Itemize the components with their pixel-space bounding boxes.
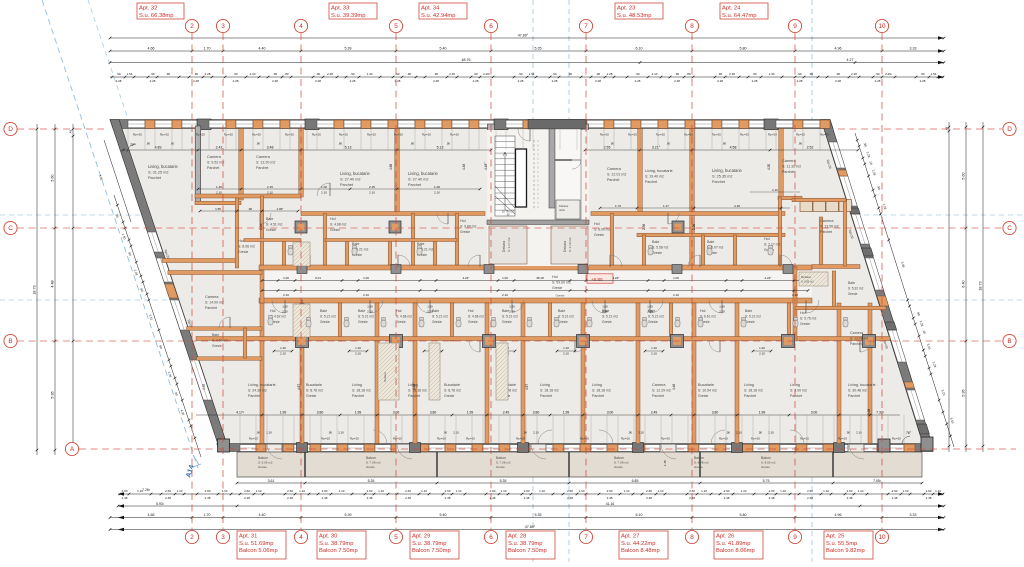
svg-text:Gresie: Gresie [396, 320, 406, 324]
svg-text:.80: .80 [284, 72, 289, 76]
svg-text:Apt. 33: Apt. 33 [331, 5, 349, 11]
svg-text:48.76: 48.76 [462, 58, 471, 62]
svg-text:1.99: 1.99 [759, 411, 766, 415]
svg-text:5.40: 5.40 [440, 47, 447, 51]
svg-text:4.46°: 4.46° [412, 382, 416, 390]
svg-text:2.28: 2.28 [875, 79, 881, 83]
svg-text:S: 14.00 m2: S: 14.00 m2 [205, 300, 224, 304]
svg-text:2.10: 2.10 [736, 431, 742, 435]
svg-text:4.27: 4.27 [847, 58, 854, 62]
svg-text:S: 4.68 m2: S: 4.68 m2 [330, 222, 347, 226]
svg-text:Gresie: Gresie [358, 320, 368, 324]
svg-text:4.18: 4.18 [734, 204, 740, 208]
svg-text:2.10: 2.10 [533, 431, 539, 435]
svg-text:B: B [8, 338, 12, 345]
svg-text:Parchet: Parchet [256, 166, 268, 170]
svg-text:.90: .90 [596, 72, 601, 76]
svg-text:5.13: 5.13 [437, 146, 444, 150]
svg-text:Parchet: Parchet [540, 394, 552, 398]
svg-text:.90: .90 [726, 431, 730, 435]
svg-text:+5.85: +5.85 [591, 277, 603, 282]
svg-text:2.49: 2.49 [503, 411, 510, 415]
svg-text:Gresie: Gresie [594, 233, 604, 237]
svg-text:Gresie: Gresie [238, 250, 248, 254]
svg-text:.90: .90 [920, 72, 925, 76]
svg-text:2.28: 2.28 [327, 72, 333, 76]
svg-text:2.10: 2.10 [427, 310, 433, 314]
svg-text:Apt. 32: Apt. 32 [139, 5, 157, 11]
svg-text:.90: .90 [473, 72, 478, 76]
svg-text:Rp=20: Rp=20 [656, 133, 665, 137]
svg-text:2.10: 2.10 [250, 72, 256, 76]
svg-text:1.20: 1.20 [759, 346, 765, 350]
svg-text:.90: .90 [146, 142, 150, 146]
svg-text:4.66: 4.66 [148, 47, 155, 51]
svg-text:S: 19.40 m2: S: 19.40 m2 [645, 174, 664, 178]
svg-text:2.10: 2.10 [338, 431, 344, 435]
svg-text:2.48: 2.48 [205, 496, 211, 500]
svg-text:Rp=20: Rp=20 [285, 133, 294, 137]
svg-text:2.36: 2.36 [642, 224, 646, 230]
svg-text:1.10: 1.10 [177, 489, 183, 493]
svg-text:.90: .90 [875, 72, 880, 76]
svg-text:.90: .90 [552, 72, 557, 76]
svg-text:S: 27.40 m2: S: 27.40 m2 [408, 177, 428, 181]
svg-text:3.21°: 3.21° [652, 146, 661, 150]
svg-text:Rp=20: Rp=20 [367, 133, 376, 137]
svg-text:2.28: 2.28 [433, 79, 439, 83]
svg-text:3.33: 3.33 [910, 47, 917, 51]
svg-text:5.35: 5.35 [535, 513, 542, 517]
svg-text:1.10: 1.10 [658, 489, 664, 493]
svg-text:6.40: 6.40 [962, 280, 966, 287]
svg-text:S: 4.68 m2: S: 4.68 m2 [396, 314, 412, 318]
svg-text:Gresie: Gresie [320, 320, 330, 324]
svg-text:2.60: 2.60 [926, 489, 932, 493]
svg-text:41.16: 41.16 [606, 502, 615, 506]
svg-text:Parchet: Parchet [712, 180, 726, 184]
svg-text:2.48: 2.48 [367, 496, 373, 500]
svg-text:S: 27.40 m2: S: 27.40 m2 [340, 177, 360, 181]
svg-text:.90: .90 [434, 72, 439, 76]
svg-text:Debara/: Debara/ [559, 204, 569, 208]
svg-text:3.80: 3.80 [430, 411, 437, 415]
svg-text:.90: .90 [610, 142, 614, 146]
svg-text:.90: .90 [233, 72, 238, 76]
svg-text:Gresie: Gresie [648, 320, 658, 324]
svg-text:Living, bucatarie: Living, bucatarie [148, 164, 179, 169]
svg-text:2.10: 2.10 [719, 310, 725, 314]
svg-text:1.40: 1.40 [367, 72, 373, 76]
svg-text:Hol: Hol [460, 219, 466, 223]
svg-text:Camera: Camera [782, 158, 797, 163]
svg-text:4.89: 4.89 [155, 146, 162, 150]
svg-text:Rp=20: Rp=20 [661, 437, 670, 441]
svg-text:S: 7.08 m2: S: 7.08 m2 [496, 461, 511, 465]
svg-text:.90: .90 [350, 72, 355, 76]
svg-text:1.99: 1.99 [563, 411, 570, 415]
svg-text:2.60: 2.60 [724, 489, 730, 493]
svg-text:Gresie: Gresie [602, 320, 612, 324]
svg-text:2.60: 2.60 [322, 489, 328, 493]
svg-text:2.60: 2.60 [807, 489, 813, 493]
svg-text:2.52: 2.52 [807, 146, 814, 150]
svg-text:Balcon 7.50mp: Balcon 7.50mp [319, 548, 358, 554]
svg-text:Camera: Camera [205, 295, 219, 299]
svg-text:1.40: 1.40 [769, 72, 775, 76]
svg-text:3.33: 3.33 [910, 513, 917, 517]
svg-text:2.26: 2.26 [259, 224, 263, 230]
svg-text:Apt. 27: Apt. 27 [621, 533, 639, 539]
svg-text:9: 9 [793, 23, 797, 30]
svg-text:2.28: 2.28 [193, 79, 199, 83]
svg-text:7: 7 [584, 534, 588, 541]
svg-text:Debara: Debara [801, 275, 811, 279]
svg-text:5.39: 5.39 [345, 47, 352, 51]
svg-text:4.50: 4.50 [767, 164, 771, 170]
svg-text:Hol: Hol [468, 309, 474, 313]
svg-text:Living, bucatarie: Living, bucatarie [645, 169, 673, 173]
svg-text:4.17²: 4.17² [236, 411, 245, 415]
svg-text:2.10: 2.10 [216, 191, 222, 195]
svg-text:Parchet: Parchet [592, 394, 604, 398]
svg-text:Gresie: Gresie [258, 465, 267, 469]
svg-text:2.28: 2.28 [752, 79, 758, 83]
svg-text:2.28: 2.28 [635, 79, 641, 83]
svg-text:2.60: 2.60 [769, 489, 775, 493]
svg-text:2.20: 2.20 [851, 72, 857, 76]
svg-text:2.42: 2.42 [216, 146, 223, 150]
svg-text:2.55: 2.55 [604, 146, 611, 150]
svg-text:2.28: 2.28 [920, 79, 926, 83]
svg-text:2.28: 2.28 [607, 72, 613, 76]
svg-text:2.60: 2.60 [689, 489, 695, 493]
svg-text:S: 8.06 m2: S: 8.06 m2 [761, 461, 776, 465]
svg-text:S.u. 41.89mp: S.u. 41.89mp [716, 541, 750, 547]
svg-text:2.10: 2.10 [502, 293, 508, 297]
svg-text:2.28: 2.28 [729, 72, 735, 76]
svg-text:Camera: Camera [607, 166, 622, 171]
svg-text:Hol: Hol [764, 237, 770, 241]
svg-text:S: 5.32 m2: S: 5.32 m2 [848, 286, 864, 290]
svg-text:.90: .90 [797, 72, 802, 76]
svg-text:1.99: 1.99 [280, 411, 287, 415]
svg-text:Baie: Baie [212, 333, 219, 337]
svg-text:2: 2 [190, 23, 194, 30]
svg-text:2.36: 2.36 [692, 224, 696, 230]
svg-text:2.48: 2.48 [445, 496, 451, 500]
svg-text:Parchet: Parchet [652, 394, 664, 398]
svg-text:.90: .90 [273, 72, 278, 76]
svg-text:1.10: 1.10 [701, 489, 707, 493]
svg-text:2.28: 2.28 [116, 79, 122, 83]
svg-text:2.26¹: 2.26¹ [483, 72, 490, 76]
svg-text:1.10: 1.10 [858, 489, 864, 493]
svg-text:2.28: 2.28 [797, 79, 803, 83]
svg-text:4.46: 4.46 [672, 384, 676, 390]
svg-text:2.48: 2.48 [926, 496, 932, 500]
svg-text:Rp=20: Rp=20 [684, 133, 693, 137]
svg-text:Rp=20: Rp=20 [249, 437, 258, 441]
svg-text:Parchet: Parchet [607, 178, 619, 182]
svg-text:S: 12.29 m2: S: 12.29 m2 [652, 388, 671, 392]
svg-text:7.26²: 7.26² [142, 488, 151, 492]
svg-text:Camera: Camera [256, 154, 271, 159]
svg-text:2.48: 2.48 [847, 496, 853, 500]
svg-text:2.10: 2.10 [772, 188, 778, 192]
svg-text:4.24°: 4.24° [612, 276, 620, 280]
svg-text:1.00: 1.00 [321, 185, 327, 189]
svg-text:S.u. 42.94mp: S.u. 42.94mp [421, 13, 455, 19]
svg-text:Baie: Baie [502, 309, 509, 313]
svg-text:Rp=20: Rp=20 [160, 133, 169, 137]
svg-text:2.48: 2.48 [724, 496, 730, 500]
svg-text:Balcon 7.50mp: Balcon 7.50mp [508, 548, 547, 554]
svg-text:Balcon: Balcon [366, 456, 376, 460]
svg-text:1.10: 1.10 [780, 489, 786, 493]
svg-text:5.60: 5.60 [51, 174, 55, 181]
svg-text:4.96: 4.96 [835, 47, 842, 51]
svg-text:Living, bucatarie: Living, bucatarie [340, 171, 371, 176]
svg-text:S: 5.21 m2: S: 5.21 m2 [558, 314, 574, 318]
svg-text:Rp=20: Rp=20 [820, 133, 829, 137]
svg-text:Apt. 31: Apt. 31 [239, 533, 257, 539]
svg-text:.90: .90 [410, 142, 414, 146]
svg-text:1.70: 1.70 [204, 47, 211, 51]
svg-text:Gresie: Gresie [652, 251, 662, 255]
svg-text:Gresie: Gresie [745, 320, 755, 324]
svg-text:S: 3.00 m2: S: 3.00 m2 [790, 388, 807, 392]
svg-text:2.28: 2.28 [315, 79, 321, 83]
svg-text:2.60: 2.60 [165, 489, 171, 493]
svg-text:2.60: 2.60 [524, 489, 530, 493]
svg-text:4.40: 4.40 [259, 513, 266, 517]
svg-text:1.00: 1.00 [367, 305, 373, 309]
svg-text:Living: Living [352, 383, 362, 387]
svg-text:.90: .90 [675, 72, 680, 76]
svg-text:2.10: 2.10 [647, 310, 653, 314]
svg-text:2.28: 2.28 [272, 79, 278, 83]
svg-text:S: 59.60 m2: S: 59.60 m2 [552, 280, 571, 284]
svg-text:Rp=20: Rp=20 [422, 133, 431, 137]
svg-text:B: B [1007, 338, 1011, 345]
svg-text:Balcon: Balcon [694, 456, 704, 460]
svg-text:.90: .90 [836, 72, 841, 76]
svg-text:Bucatarie: Bucatarie [444, 383, 460, 387]
svg-text:5.95: 5.95 [51, 391, 55, 398]
svg-text:S: 5.58 m2: S: 5.58 m2 [652, 245, 669, 249]
svg-text:2.28: 2.28 [473, 79, 479, 83]
svg-text:Parchet: Parchet [340, 183, 354, 187]
svg-text:2.10: 2.10 [792, 293, 798, 297]
svg-text:3.80: 3.80 [533, 411, 540, 415]
svg-text:S: 18.18 m2: S: 18.18 m2 [592, 388, 611, 392]
svg-text:Rp=20: Rp=20 [712, 133, 721, 137]
svg-text:3.00: 3.00 [607, 411, 614, 415]
svg-text:Gresie: Gresie [556, 294, 565, 298]
svg-text:D: D [8, 126, 13, 133]
svg-text:4.66: 4.66 [148, 513, 155, 517]
svg-text:2.48: 2.48 [646, 496, 652, 500]
svg-text:2.10: 2.10 [282, 310, 288, 314]
svg-text:S: 13.20 m2: S: 13.20 m2 [256, 160, 275, 164]
svg-text:S: 11.32 m2: S: 11.32 m2 [782, 164, 801, 168]
svg-text:S.u. 66.38mp: S.u. 66.38mp [139, 13, 173, 19]
svg-text:Parchet: Parchet [408, 394, 420, 398]
svg-text:.90: .90 [722, 142, 726, 146]
svg-text:S.u. 38.79mp: S.u. 38.79mp [412, 541, 446, 547]
svg-text:2.10: 2.10 [280, 352, 286, 356]
svg-text:Gresie: Gresie [212, 344, 222, 348]
svg-text:2.60: 2.60 [892, 489, 898, 493]
svg-text:Debara: Debara [502, 241, 506, 252]
svg-text:S.u. 39.39mp: S.u. 39.39mp [331, 13, 365, 19]
svg-text:4: 4 [299, 23, 303, 30]
svg-text:2.28: 2.28 [595, 79, 601, 83]
svg-text:Balcon 7.50mp: Balcon 7.50mp [412, 548, 451, 554]
svg-text:Hol: Hol [330, 217, 336, 221]
svg-text:Balcon: Balcon [496, 456, 506, 460]
svg-text:2.28: 2.28 [518, 79, 524, 83]
svg-text:Rp=20: Rp=20 [516, 437, 525, 441]
svg-text:.90: .90 [316, 72, 321, 76]
svg-text:6.10: 6.10 [636, 513, 643, 517]
svg-text:3.80: 3.80 [317, 411, 324, 415]
svg-text:2.60: 2.60 [122, 489, 128, 493]
svg-text:S: 5.21 m2: S: 5.21 m2 [648, 314, 664, 318]
svg-text:2.10: 2.10 [453, 431, 459, 435]
svg-text:Gresie: Gresie [761, 465, 770, 469]
svg-text:1.54: 1.54 [931, 72, 937, 76]
svg-text:.90: .90 [443, 431, 447, 435]
svg-text:Living, bucatarie: Living, bucatarie [712, 168, 743, 173]
svg-text:Baie: Baie [432, 309, 439, 313]
svg-text:47.89°: 47.89° [525, 525, 536, 529]
svg-text:5.60: 5.60 [962, 172, 966, 179]
svg-text:Rp=20: Rp=20 [796, 133, 805, 137]
svg-text:S: 8.48 m2: S: 8.48 m2 [694, 461, 709, 465]
svg-text:2.10: 2.10 [267, 191, 273, 195]
svg-text:1.10: 1.10 [624, 489, 630, 493]
svg-text:S: 3.10 m2: S: 3.10 m2 [568, 237, 572, 252]
svg-text:S.u. 48.53mp: S.u. 48.53mp [617, 13, 651, 19]
svg-text:2.10: 2.10 [509, 310, 515, 314]
svg-text:Parchet: Parchet [850, 342, 862, 346]
svg-text:2.60: 2.60 [607, 489, 613, 493]
svg-text:S: 13.06 m2: S: 13.06 m2 [850, 336, 868, 340]
svg-text:.90: .90 [523, 431, 527, 435]
svg-text:.90: .90 [666, 142, 670, 146]
svg-text:S: 7.08 m2: S: 7.08 m2 [614, 461, 629, 465]
svg-text:2.15: 2.15 [267, 185, 273, 189]
svg-text:Gresie: Gresie [460, 230, 470, 234]
svg-text:1.73: 1.73 [615, 204, 621, 208]
svg-text:2.28: 2.28 [835, 79, 841, 83]
svg-text:Debara: Debara [383, 372, 387, 382]
svg-text:Rp=20: Rp=20 [252, 133, 261, 137]
svg-text:.90: .90 [628, 431, 632, 435]
svg-text:2.48: 2.48 [807, 496, 813, 500]
svg-text:2.60: 2.60 [205, 489, 211, 493]
svg-text:2.10: 2.10 [563, 352, 569, 356]
svg-text:18.73: 18.73 [979, 281, 983, 290]
svg-text:2.10: 2.10 [856, 431, 862, 435]
svg-text:.90: .90 [116, 72, 121, 76]
svg-text:Rp=20: Rp=20 [224, 133, 233, 137]
svg-text:Parchet: Parchet [207, 166, 219, 170]
svg-text:S: 10.54 m2: S: 10.54 m2 [698, 388, 717, 392]
svg-text:Living: Living [540, 383, 550, 387]
svg-text:1.17: 1.17 [663, 204, 669, 208]
svg-text:6.01: 6.01 [315, 276, 321, 280]
svg-text:S: 9.52 m2: S: 9.52 m2 [207, 160, 224, 164]
svg-text:Baie: Baie [320, 309, 327, 313]
svg-text:Parchet: Parchet [148, 176, 162, 180]
svg-text:8: 8 [690, 23, 694, 30]
svg-text:2.48: 2.48 [244, 496, 250, 500]
svg-text:2.48: 2.48 [287, 496, 293, 500]
svg-text:4.87: 4.87 [297, 384, 301, 390]
svg-text:Rp=20: Rp=20 [621, 437, 630, 441]
svg-text:6.10: 6.10 [636, 47, 643, 51]
svg-text:Living, bucatarie: Living, bucatarie [248, 383, 276, 387]
svg-text:Camera: Camera [207, 154, 222, 159]
svg-text:2.28: 2.28 [552, 79, 558, 83]
svg-text:2.10: 2.10 [321, 191, 327, 195]
svg-text:6: 6 [489, 534, 493, 541]
svg-text:Hol: Hol [700, 309, 706, 313]
svg-text:Gresie: Gresie [694, 465, 703, 469]
svg-text:S: 8.06 m2: S: 8.06 m2 [238, 244, 255, 248]
svg-text:S: 18.18 m2: S: 18.18 m2 [744, 388, 763, 392]
svg-text:2.60: 2.60 [490, 489, 496, 493]
svg-text:Rp=20: Rp=20 [892, 437, 901, 441]
svg-text:S: 5.21 m2: S: 5.21 m2 [358, 314, 374, 318]
svg-text:S: 3.17 m2: S: 3.17 m2 [507, 237, 511, 252]
svg-text:5: 5 [394, 23, 398, 30]
svg-text:S: 0.85 m2: S: 0.85 m2 [801, 280, 814, 284]
svg-text:.80: .80 [686, 72, 691, 76]
svg-text:S.u. 51.69mp: S.u. 51.69mp [239, 541, 273, 547]
svg-text:Baie: Baie [558, 309, 565, 313]
svg-text:Baie: Baie [848, 281, 855, 285]
svg-text:1.10: 1.10 [539, 489, 545, 493]
svg-text:Rp=20: Rp=20 [350, 437, 359, 441]
svg-text:7.05²: 7.05² [873, 479, 882, 483]
svg-text:Rp=20: Rp=20 [800, 437, 809, 441]
svg-text:1.10: 1.10 [903, 489, 909, 493]
svg-text:Parchet: Parchet [790, 394, 802, 398]
svg-text:.90: .90 [338, 142, 342, 146]
svg-text:Balcon: Balcon [761, 456, 771, 460]
svg-text:.90: .90 [518, 72, 523, 76]
svg-text:Gresie: Gresie [496, 465, 505, 469]
svg-text:Balcon 9.82mp: Balcon 9.82mp [826, 548, 865, 554]
svg-text:4.87: 4.87 [525, 384, 529, 390]
svg-text:10: 10 [878, 23, 886, 30]
svg-text:S.u. 64.47mp: S.u. 64.47mp [722, 13, 756, 19]
svg-text:Hol: Hol [270, 309, 276, 313]
svg-text:1.00: 1.00 [719, 305, 725, 309]
svg-text:8: 8 [690, 534, 694, 541]
svg-text:2.60: 2.60 [567, 489, 573, 493]
svg-text:Parchet: Parchet [848, 394, 860, 398]
svg-text:3: 3 [221, 534, 225, 541]
svg-text:76°: 76° [906, 431, 912, 435]
svg-text:72°: 72° [130, 143, 136, 147]
svg-text:3.98: 3.98 [867, 409, 871, 415]
svg-text:Balcon: Balcon [614, 456, 624, 460]
